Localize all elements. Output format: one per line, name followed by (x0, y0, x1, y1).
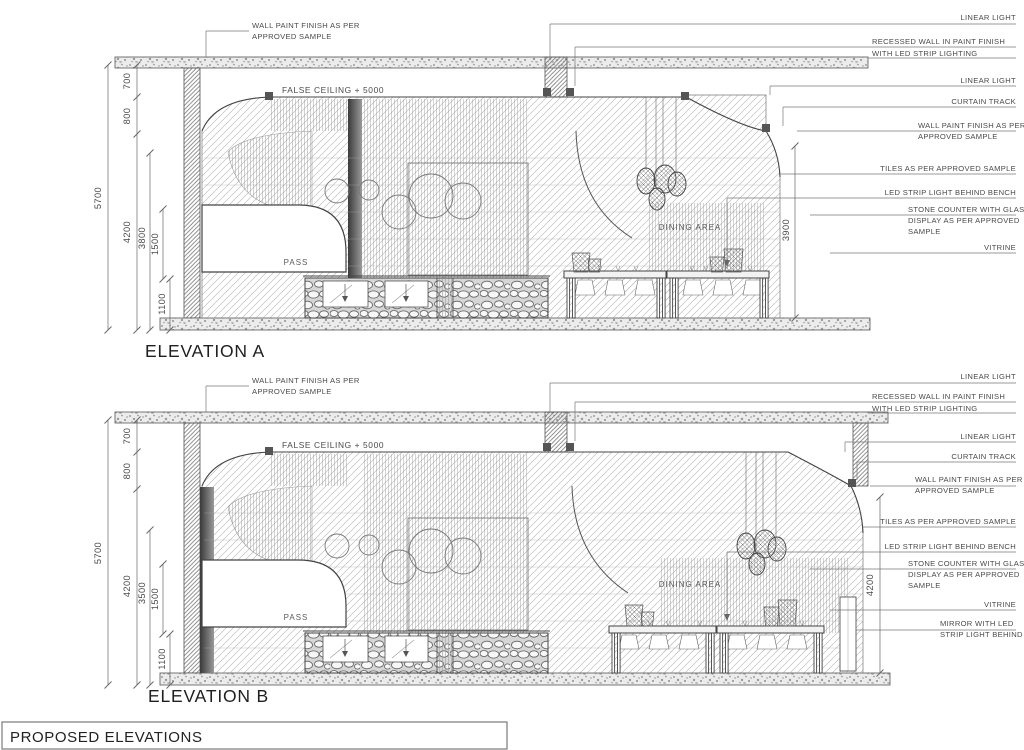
wall-paint-note-line2: APPROVED SAMPLE (252, 32, 332, 41)
annotation-curtain-track: CURTAIN TRACK (951, 452, 1016, 461)
annotation-linear-light-top: LINEAR LIGHT (960, 13, 1016, 22)
wall-paint-note-line1: WALL PAINT FINISH AS PER (252, 376, 360, 385)
dim-mid: 1500 (150, 588, 160, 610)
annotation-recessed-wall-line1: RECESSED WALL IN PAINT FINISH (872, 37, 1005, 46)
false-ceiling-marker (265, 447, 273, 455)
annotation-mirror-line1: MIRROR WITH LED (940, 619, 1014, 628)
annotation-stone-counter-line2: DISPLAY AS PER APPROVED (908, 216, 1020, 225)
right-wall-section (853, 423, 868, 486)
wall-paint-note-line1: WALL PAINT FINISH AS PER (252, 21, 360, 30)
recessed-light-marker (543, 88, 551, 96)
recessed-light-marker (566, 88, 574, 96)
dim-inner: 3500 (137, 582, 147, 604)
elevation-b-title: ELEVATION B (148, 686, 269, 706)
annotation-recessed-wall-line1: RECESSED WALL IN PAINT FINISH (872, 392, 1005, 401)
annotation-curtain-track: CURTAIN TRACK (951, 97, 1016, 106)
glass-display (385, 636, 428, 662)
annotation-wall-paint-line1: WALL PAINT FINISH AS PER (918, 121, 1024, 130)
annotation-stone-counter-line2: DISPLAY AS PER APPROVED (908, 570, 1020, 579)
annotation-wall-paint-line2: APPROVED SAMPLE (918, 132, 998, 141)
dark-feature-strip (348, 99, 362, 283)
annotation-stone-counter-line3: SAMPLE (908, 227, 941, 236)
dim-right: 4200 (865, 574, 875, 596)
annotation-mirror-line2: STRIP LIGHT BEHIND (940, 630, 1023, 639)
drawing-sheet: PASS FALSE CEILING + 5000 (0, 0, 1024, 750)
bulkhead-face (270, 454, 348, 486)
sheet-title: PROPOSED ELEVATIONS (10, 729, 203, 746)
glass-display (323, 636, 368, 662)
curtain-track-marker (848, 479, 856, 487)
annotation-stone-counter-line1: STONE COUNTER WITH GLASS (908, 559, 1024, 568)
dim-inner: 3800 (137, 227, 147, 249)
proposed-elevations-drawing: PASS FALSE CEILING + 5000 (0, 0, 1024, 750)
annotation-tiles: TILES AS PER APPROVED SAMPLE (880, 164, 1016, 173)
elevation-b-drawing: PASS FALSE CEILING + 5000 (93, 372, 1024, 706)
false-ceiling-label: FALSE CEILING + 5000 (282, 85, 384, 95)
ceiling-slab (115, 412, 888, 423)
dim-overall: 5700 (93, 542, 103, 564)
dim-bulkhead: 800 (122, 463, 132, 480)
pass-label: PASS (284, 613, 309, 622)
title-block: PROPOSED ELEVATIONS (2, 722, 507, 749)
annotation-led-strip: LED STRIP LIGHT BEHIND BENCH (885, 542, 1016, 551)
dim-soffit: 700 (122, 428, 132, 445)
annotation-stone-counter-line1: STONE COUNTER WITH GLASS (908, 205, 1024, 214)
left-wall-section (184, 68, 200, 318)
annotation-recessed-wall-line2: WITH LED STRIP LIGHTING (872, 49, 978, 58)
dining-area-label: DINING AREA (659, 580, 722, 589)
annotation-recessed-wall-line2: WITH LED STRIP LIGHTING (872, 404, 978, 413)
false-ceiling-marker (681, 92, 689, 100)
annotation-stone-counter-line3: SAMPLE (908, 581, 941, 590)
annotation-wall-paint-line1: WALL PAINT FINISH AS PER (915, 475, 1023, 484)
curtain-track-marker (762, 124, 770, 132)
recessed-light-marker (543, 443, 551, 451)
stone-counter (303, 276, 550, 318)
pass-opening (202, 560, 346, 627)
annotation-linear-light: LINEAR LIGHT (960, 432, 1016, 441)
annotation-wall-paint-line2: APPROVED SAMPLE (915, 486, 995, 495)
glass-display (385, 281, 428, 307)
bulkhead-face (270, 99, 348, 131)
ceiling-slab (115, 57, 868, 68)
dim-soffit: 700 (122, 73, 132, 90)
dim-wall: 4200 (122, 221, 132, 243)
dim-base: 1100 (157, 293, 167, 315)
dim-overall: 5700 (93, 187, 103, 209)
pass-label: PASS (284, 258, 309, 267)
elevation-a-title: ELEVATION A (145, 341, 265, 361)
annotation-vitrine: VITRINE (984, 243, 1016, 252)
dim-bulkhead: 800 (122, 108, 132, 125)
annotation-linear-light-top: LINEAR LIGHT (960, 372, 1016, 381)
annotation-vitrine: VITRINE (984, 600, 1016, 609)
stone-counter (303, 631, 550, 673)
dim-mid: 1500 (150, 233, 160, 255)
center-wall-panel (362, 454, 528, 638)
dim-base: 1100 (157, 648, 167, 670)
center-wall-panel (362, 99, 528, 283)
left-wall-section (184, 423, 200, 673)
floor-slab (160, 673, 890, 685)
annotation-tiles: TILES AS PER APPROVED SAMPLE (880, 517, 1016, 526)
annotation-linear-light: LINEAR LIGHT (960, 76, 1016, 85)
pass-opening (202, 205, 346, 272)
annotation-led-strip: LED STRIP LIGHT BEHIND BENCH (885, 188, 1016, 197)
floor-slab (160, 318, 870, 330)
dining-area-label: DINING AREA (659, 223, 722, 232)
glass-display (323, 281, 368, 307)
false-ceiling-marker (265, 92, 273, 100)
recessed-light-marker (566, 443, 574, 451)
dim-wall: 4200 (122, 575, 132, 597)
elevation-a-drawing: PASS FALSE CEILING + 5000 (93, 13, 1024, 361)
false-ceiling-label: FALSE CEILING + 5000 (282, 440, 384, 450)
wall-paint-note-line2: APPROVED SAMPLE (252, 387, 332, 396)
dim-right: 3900 (781, 219, 791, 241)
